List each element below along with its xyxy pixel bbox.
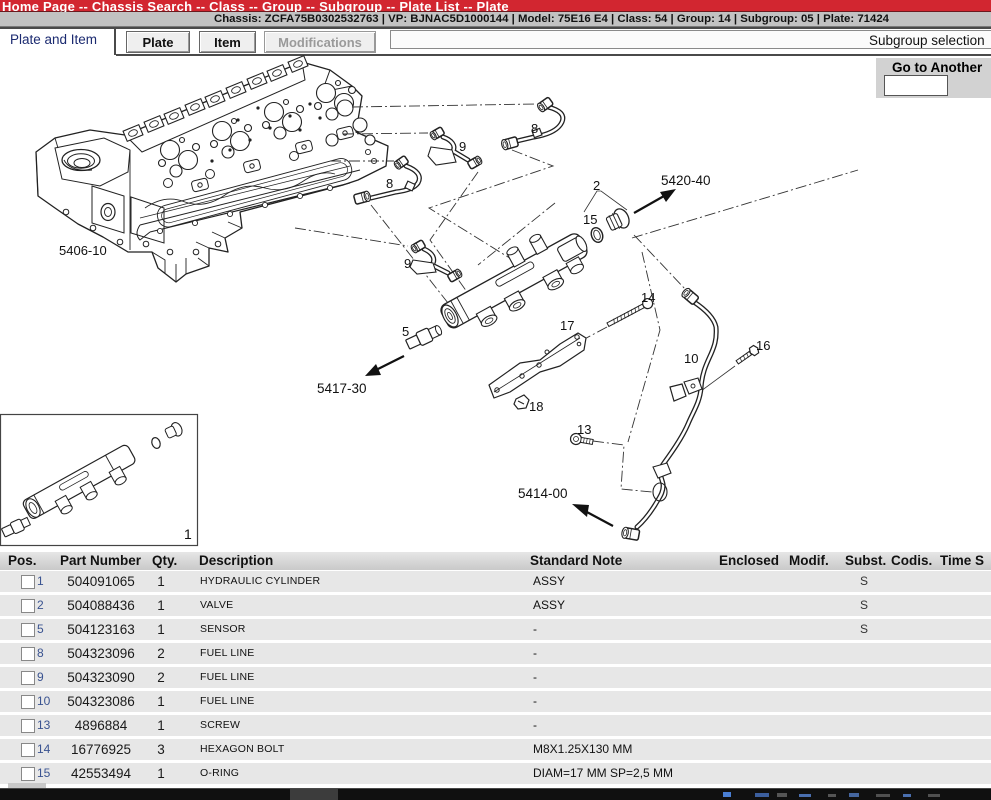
- svg-text:17: 17: [560, 318, 574, 333]
- svg-text:9: 9: [459, 139, 466, 154]
- svg-text:5420-40: 5420-40: [661, 173, 711, 188]
- svg-text:8: 8: [386, 176, 393, 191]
- svg-text:13: 13: [577, 422, 591, 437]
- svg-text:9: 9: [404, 256, 411, 271]
- svg-text:10: 10: [684, 351, 698, 366]
- svg-text:15: 15: [583, 212, 597, 227]
- svg-text:5: 5: [402, 324, 409, 339]
- svg-text:8: 8: [531, 121, 538, 136]
- svg-text:2: 2: [593, 178, 600, 193]
- svg-text:18: 18: [529, 399, 543, 414]
- svg-text:1: 1: [184, 526, 192, 542]
- svg-text:5406-10: 5406-10: [59, 243, 107, 258]
- svg-text:14: 14: [641, 290, 655, 305]
- svg-text:5414-00: 5414-00: [518, 486, 568, 501]
- svg-text:16: 16: [756, 338, 770, 353]
- svg-text:5417-30: 5417-30: [317, 381, 367, 396]
